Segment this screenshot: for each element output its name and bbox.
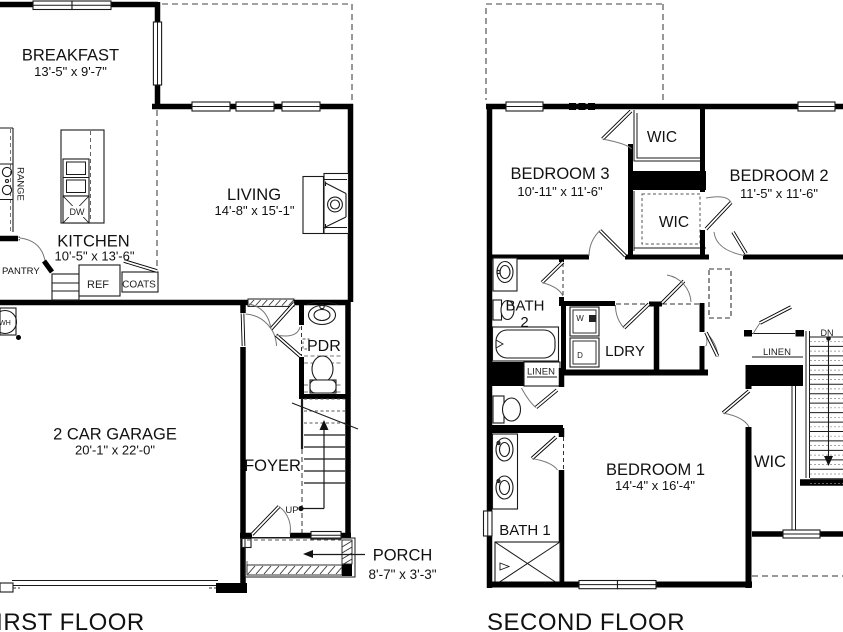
svg-text:BATH: BATH xyxy=(506,298,545,315)
svg-text:WIC: WIC xyxy=(659,214,689,231)
svg-text:BATH 1: BATH 1 xyxy=(499,522,550,539)
svg-text:COATS: COATS xyxy=(122,280,156,291)
svg-text:UP: UP xyxy=(285,505,298,516)
svg-text:D: D xyxy=(577,351,583,360)
svg-text:BEDROOM 2: BEDROOM 2 xyxy=(729,167,828,185)
svg-text:REF: REF xyxy=(87,279,109,291)
svg-text:14'-8" x 15'-1": 14'-8" x 15'-1" xyxy=(215,203,295,218)
svg-text:2 CAR GARAGE: 2 CAR GARAGE xyxy=(53,426,177,444)
svg-text:BEDROOM 1: BEDROOM 1 xyxy=(606,461,705,479)
svg-text:BEDROOM 3: BEDROOM 3 xyxy=(510,165,609,183)
svg-text:LIVING: LIVING xyxy=(227,186,281,204)
svg-text:WIC: WIC xyxy=(754,453,786,471)
svg-text:PDR: PDR xyxy=(307,338,341,355)
svg-text:FOYER: FOYER xyxy=(244,457,301,475)
svg-text:LDRY: LDRY xyxy=(605,343,645,360)
svg-text:13'-5" x 9'-7": 13'-5" x 9'-7" xyxy=(34,64,107,79)
svg-text:14'-4" x 16'-4": 14'-4" x 16'-4" xyxy=(615,478,695,493)
svg-text:2: 2 xyxy=(520,314,528,331)
svg-text:PORCH: PORCH xyxy=(373,547,433,565)
svg-text:FIRST FLOOR: FIRST FLOOR xyxy=(0,609,145,632)
svg-text:W: W xyxy=(576,314,584,323)
svg-text:WH: WH xyxy=(0,320,11,327)
svg-text:SECOND FLOOR: SECOND FLOOR xyxy=(487,609,685,632)
svg-text:11'-5" x 11'-6": 11'-5" x 11'-6" xyxy=(740,186,818,201)
svg-text:LINEN: LINEN xyxy=(527,367,555,378)
svg-text:PANTRY: PANTRY xyxy=(2,266,40,277)
svg-text:LINEN: LINEN xyxy=(763,347,791,358)
svg-text:20'-1" x 22'-0": 20'-1" x 22'-0" xyxy=(75,443,155,458)
svg-text:BREAKFAST: BREAKFAST xyxy=(22,47,119,65)
svg-text:DN: DN xyxy=(821,328,834,338)
svg-text:DW: DW xyxy=(70,207,85,217)
svg-text:RANGE: RANGE xyxy=(15,167,26,201)
svg-text:10'-5" x 13'-6": 10'-5" x 13'-6" xyxy=(55,249,135,264)
svg-text:8'-7" x 3'-3": 8'-7" x 3'-3" xyxy=(368,567,436,582)
svg-text:10'-11" x 11'-6": 10'-11" x 11'-6" xyxy=(517,184,603,199)
svg-text:WIC: WIC xyxy=(647,129,677,146)
